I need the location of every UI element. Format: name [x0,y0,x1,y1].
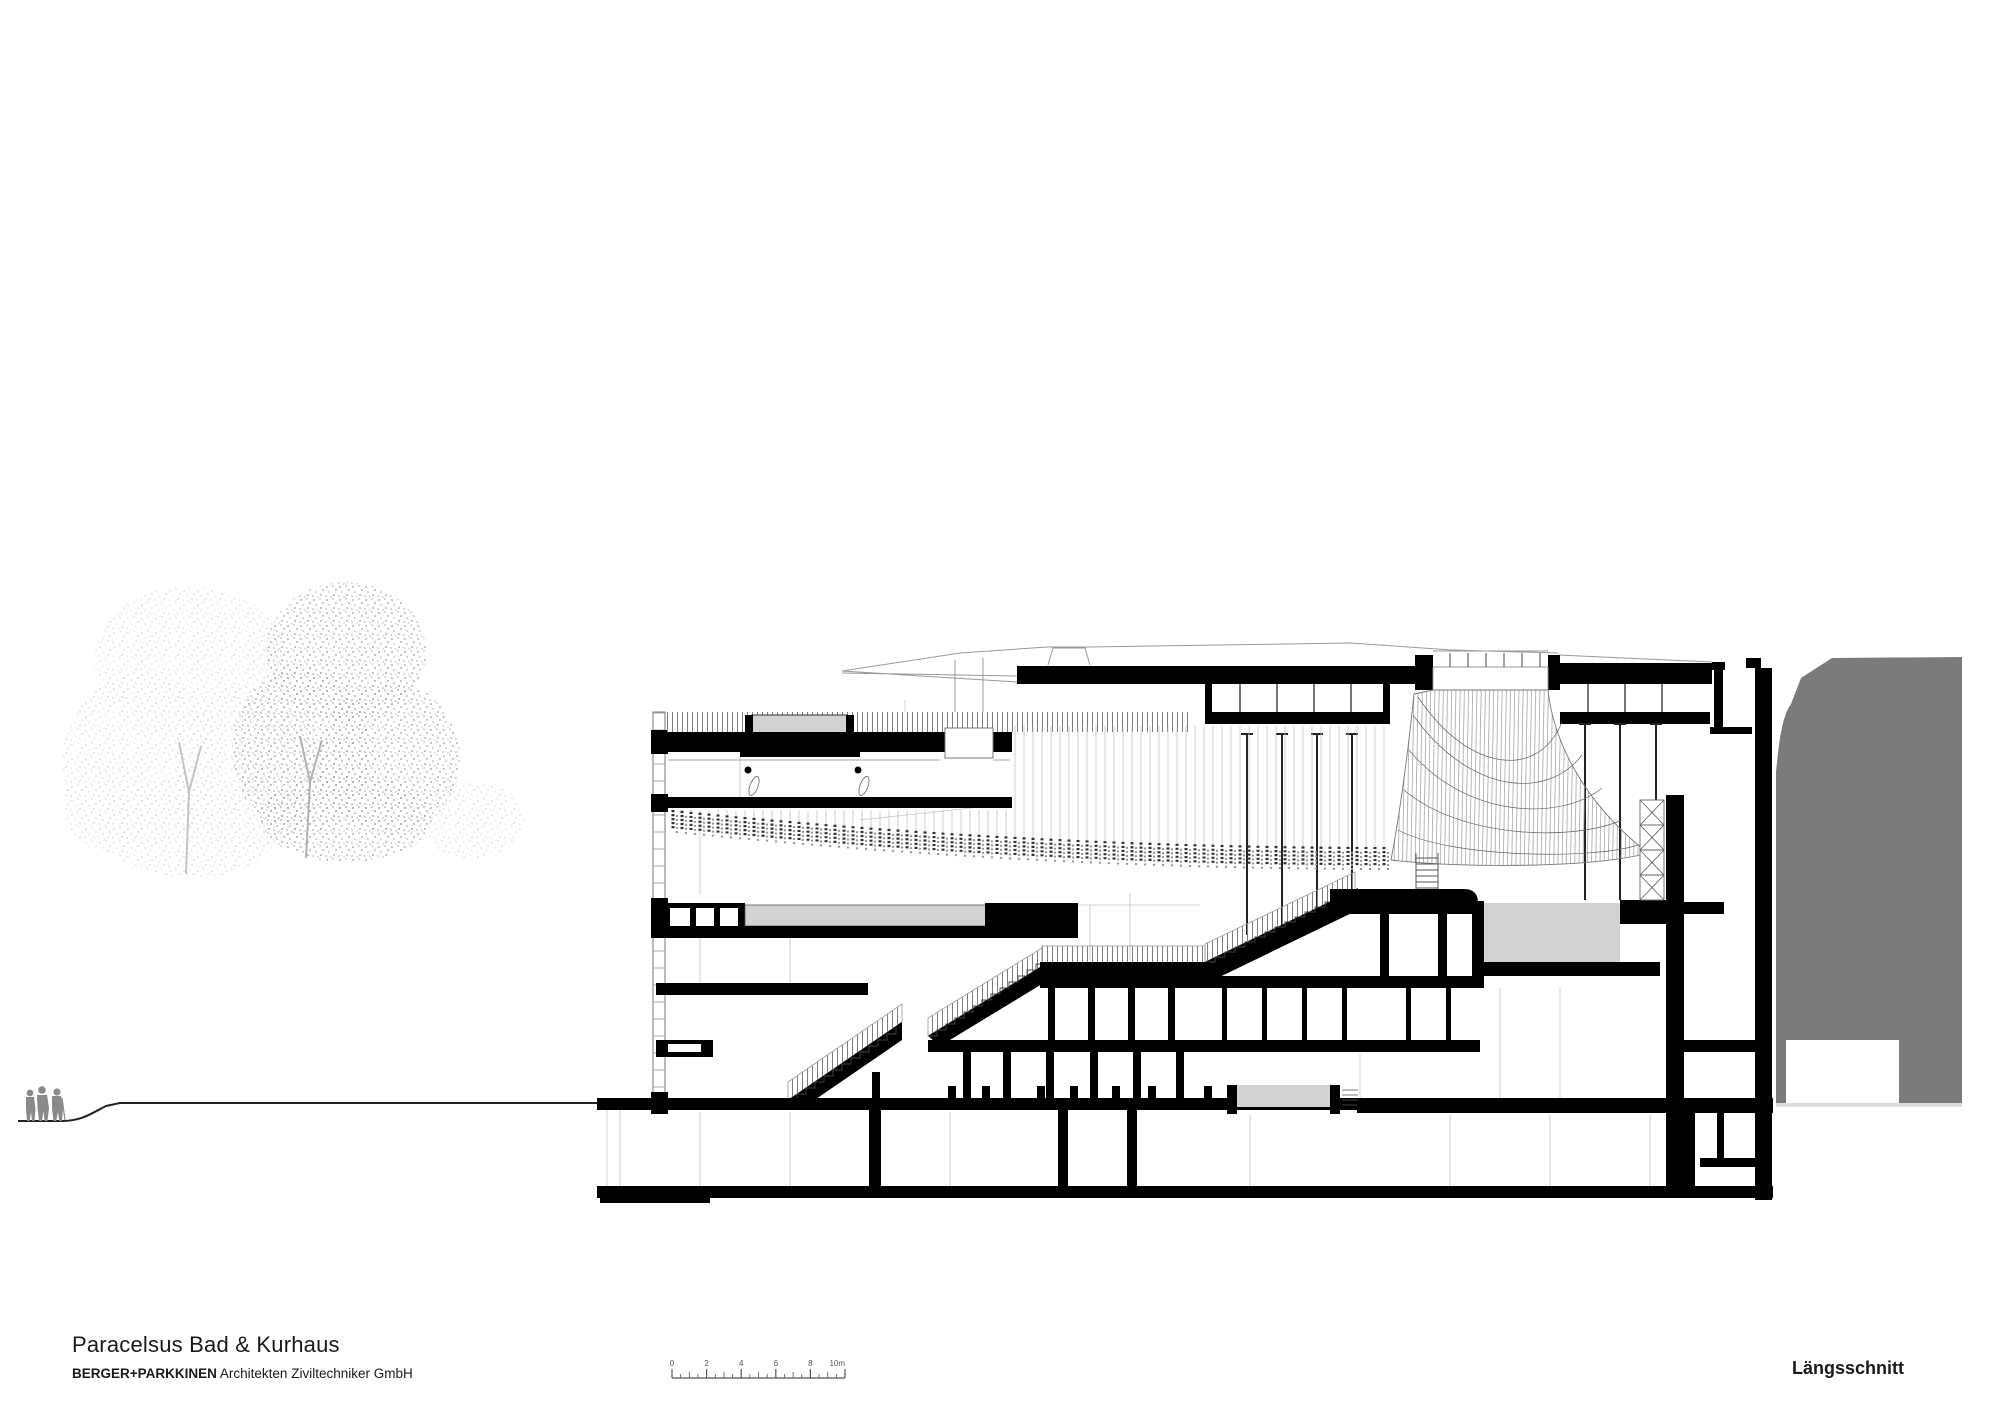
scale-bar: 0246810m [670,1359,846,1378]
mid-floors-left [656,983,868,1057]
ground-line [18,1103,600,1121]
person-figure [26,1090,36,1121]
scale-label: 2 [704,1359,709,1368]
scale-label: 6 [774,1359,779,1368]
section-drawing: 0246810m [0,0,2000,1414]
foundation-slab [597,1186,1773,1198]
building-section [597,643,1773,1203]
scale-label: 0 [670,1359,675,1368]
right-core [1684,902,1765,1167]
stage-gray-band [745,905,990,926]
context-mass-notch [1786,1040,1899,1103]
ground-and-basement [597,1085,1773,1203]
pool-water [1484,903,1620,962]
gray-context-mass [1776,657,1962,1107]
drawing-title: Längsschnitt [1792,1358,1904,1379]
architect-name-rest: Architekten Ziviltechniker GmbH [217,1366,413,1381]
hall-upper-floor-slab [656,797,1012,808]
hall-floor [656,903,1078,938]
scale-label: 4 [739,1359,744,1368]
roof-hatch-opening [945,728,993,758]
sunken-tank [1237,1085,1330,1107]
architect-line: BERGER+PARKKINEN Architekten Ziviltechni… [72,1366,413,1381]
left-roof [656,712,1190,760]
entourage-people [26,1086,65,1121]
pendant-lamps [745,767,872,797]
person-figure [37,1086,49,1121]
scale-label: 8 [808,1359,813,1368]
tree-underbrush [420,782,524,858]
person-figure [52,1088,65,1121]
architect-name-bold: BERGER+PARKKINEN [72,1366,217,1381]
trees [62,582,524,878]
drawing-sheet: 0246810m Paracelsus Bad & Kurhaus BERGER… [0,0,2000,1414]
truss-wall [1640,800,1664,900]
project-title: Paracelsus Bad & Kurhaus [72,1332,340,1358]
scale-label: 10m [829,1359,845,1368]
